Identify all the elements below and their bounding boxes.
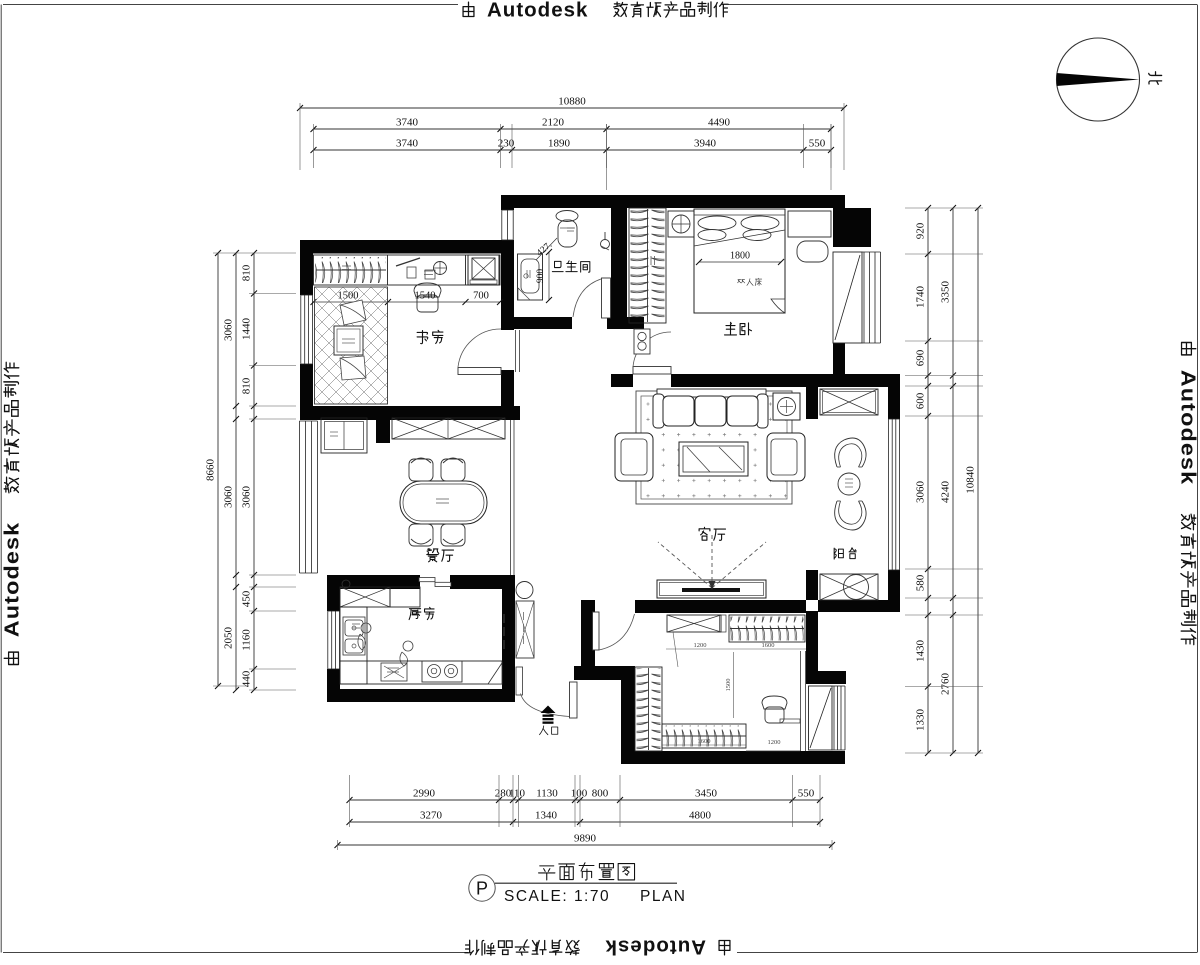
svg-text:8660: 8660 (205, 459, 217, 482)
svg-text:1800: 1800 (730, 251, 750, 262)
svg-text:PLAN: PLAN (640, 888, 687, 905)
svg-text:1600: 1600 (698, 738, 711, 745)
svg-text:800: 800 (592, 788, 609, 800)
svg-text:1200: 1200 (694, 642, 707, 649)
svg-text:2120: 2120 (542, 117, 565, 129)
svg-text:3060: 3060 (223, 319, 235, 342)
svg-text:1740: 1740 (915, 286, 927, 309)
svg-text:810: 810 (241, 264, 253, 281)
svg-text:580: 580 (915, 574, 927, 591)
svg-text:3740: 3740 (396, 117, 419, 129)
svg-text:900: 900 (536, 269, 546, 284)
svg-text:920: 920 (915, 222, 927, 239)
svg-text:3270: 3270 (420, 810, 443, 822)
svg-text:1600: 1600 (762, 642, 775, 649)
svg-text:450: 450 (241, 590, 253, 607)
svg-text:4240: 4240 (940, 481, 952, 504)
svg-text:100: 100 (571, 788, 588, 800)
svg-text:Autodesk: Autodesk (0, 522, 23, 638)
svg-text:3740: 3740 (396, 138, 419, 150)
svg-text:Autodesk: Autodesk (1177, 370, 1200, 486)
svg-text:550: 550 (798, 788, 815, 800)
svg-text:10880: 10880 (558, 96, 586, 108)
svg-text:2760: 2760 (940, 673, 952, 696)
svg-text:550: 550 (809, 138, 826, 150)
svg-text:700: 700 (473, 291, 489, 302)
svg-text:690: 690 (915, 349, 927, 366)
svg-text:810: 810 (241, 377, 253, 394)
svg-text:9890: 9890 (574, 833, 597, 845)
svg-text:10840: 10840 (965, 466, 977, 494)
svg-text:2050: 2050 (223, 627, 235, 650)
svg-text:SCALE: 1:70: SCALE: 1:70 (504, 888, 610, 905)
svg-text:4800: 4800 (689, 810, 712, 822)
svg-text:600: 600 (915, 392, 927, 409)
svg-text:2990: 2990 (413, 788, 436, 800)
svg-text:1330: 1330 (915, 709, 927, 732)
svg-text:3940: 3940 (694, 138, 717, 150)
svg-text:1340: 1340 (535, 810, 558, 822)
svg-text:1160: 1160 (241, 629, 253, 651)
svg-text:3060: 3060 (915, 481, 927, 504)
svg-text:Autodesk: Autodesk (605, 936, 706, 959)
svg-text:Autodesk: Autodesk (487, 0, 588, 22)
svg-text:440: 440 (241, 670, 253, 687)
svg-text:1130: 1130 (536, 788, 558, 800)
svg-text:1500: 1500 (725, 679, 732, 692)
svg-text:1430: 1430 (915, 640, 927, 663)
svg-text:3450: 3450 (695, 788, 718, 800)
svg-text:3060: 3060 (241, 486, 253, 509)
svg-text:1540: 1540 (415, 291, 436, 302)
svg-text:1200: 1200 (768, 739, 781, 746)
svg-text:P: P (476, 879, 488, 899)
svg-text:4490: 4490 (708, 117, 731, 129)
svg-text:1890: 1890 (548, 138, 571, 150)
svg-text:3350: 3350 (940, 281, 952, 304)
svg-text:1440: 1440 (241, 318, 253, 341)
svg-text:110: 110 (509, 788, 526, 800)
svg-text:3060: 3060 (223, 486, 235, 509)
